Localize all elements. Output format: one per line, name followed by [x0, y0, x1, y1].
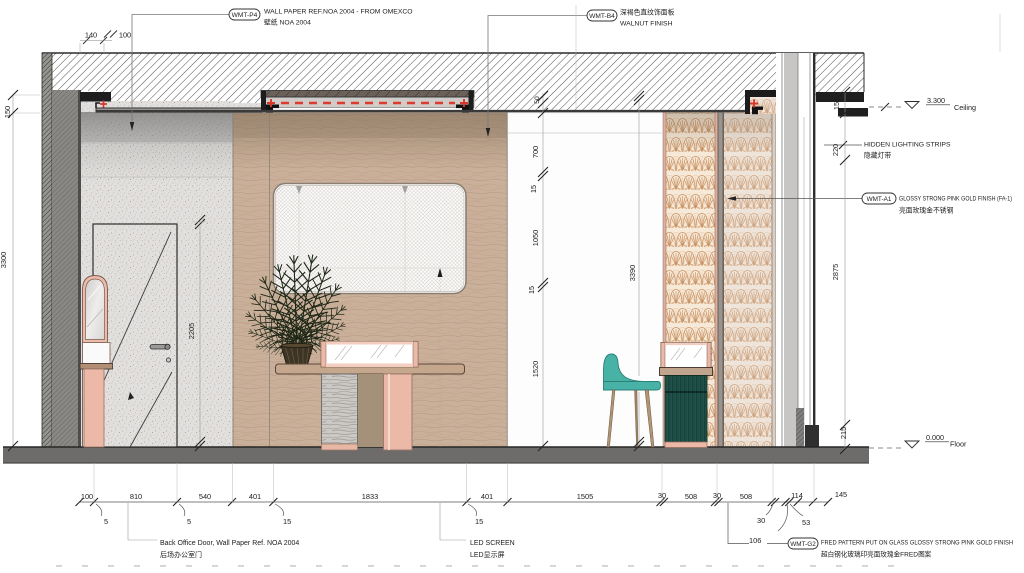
- svg-text:15: 15: [283, 517, 291, 526]
- svg-text:1050: 1050: [531, 230, 540, 246]
- svg-text:GLOSSY STRONG PINK GOLD FINISH: GLOSSY STRONG PINK GOLD FINISH (FA-1): [899, 196, 1012, 203]
- svg-text:140: 140: [85, 31, 97, 40]
- svg-text:3300: 3300: [0, 252, 8, 268]
- svg-text:114: 114: [791, 491, 803, 500]
- svg-text:100: 100: [81, 492, 93, 501]
- svg-text:700: 700: [531, 146, 540, 158]
- svg-text:1520: 1520: [531, 361, 540, 377]
- svg-text:220: 220: [831, 144, 840, 156]
- svg-text:深褐色直纹饰面板: 深褐色直纹饰面板: [620, 8, 675, 17]
- svg-text:WALL PAPER REF.NOA 2004 - FROM: WALL PAPER REF.NOA 2004 - FROM OMEXCO: [264, 9, 413, 16]
- svg-text:3390: 3390: [628, 265, 637, 281]
- svg-text:LED SCREEN: LED SCREEN: [470, 540, 515, 547]
- svg-text:Floor: Floor: [950, 440, 967, 449]
- svg-text:401: 401: [249, 492, 261, 501]
- svg-text:3.300: 3.300: [927, 96, 945, 105]
- svg-text:53: 53: [802, 518, 810, 527]
- svg-text:WMT-G2: WMT-G2: [790, 541, 816, 548]
- svg-text:WMT-A1: WMT-A1: [867, 196, 892, 203]
- svg-text:150: 150: [3, 106, 12, 118]
- svg-text:15: 15: [527, 286, 536, 294]
- svg-text:150: 150: [832, 98, 841, 110]
- svg-text:LED显示屏: LED显示屏: [470, 551, 505, 559]
- svg-text:Back Office Door, Wall Paper R: Back Office Door, Wall Paper Ref. NOA 20…: [160, 540, 299, 547]
- svg-text:WMT-P4: WMT-P4: [232, 12, 258, 19]
- svg-text:亮面玫瑰金不锈钢: 亮面玫瑰金不锈钢: [899, 206, 954, 215]
- svg-text:508: 508: [740, 492, 752, 501]
- svg-text:超白钢化玻璃印亮面玫瑰金FRED图案: 超白钢化玻璃印亮面玫瑰金FRED图案: [821, 550, 932, 559]
- svg-text:隐藏灯带: 隐藏灯带: [864, 151, 891, 160]
- svg-text:1505: 1505: [577, 492, 593, 501]
- svg-text:106: 106: [749, 536, 761, 545]
- svg-text:5: 5: [187, 517, 191, 526]
- svg-text:2875: 2875: [831, 264, 840, 280]
- svg-text:508: 508: [685, 492, 697, 501]
- svg-text:Ceiling: Ceiling: [954, 103, 976, 112]
- svg-text:401: 401: [481, 492, 493, 501]
- svg-text:145: 145: [835, 490, 847, 499]
- svg-text:540: 540: [199, 492, 211, 501]
- svg-text:215: 215: [839, 427, 848, 439]
- svg-text:WALNUT FINISH: WALNUT FINISH: [620, 21, 673, 28]
- svg-text:HIDDEN LIGHTING STRIPS: HIDDEN LIGHTING STRIPS: [864, 142, 951, 149]
- svg-text:FRED PATTERN PUT ON GLASS GLOS: FRED PATTERN PUT ON GLASS GLOSSY STRONG …: [821, 540, 1013, 547]
- svg-text:5: 5: [104, 517, 108, 526]
- svg-text:30: 30: [757, 516, 765, 525]
- svg-text:15: 15: [529, 185, 538, 193]
- svg-text:0.000: 0.000: [926, 433, 944, 442]
- svg-text:2205: 2205: [187, 323, 196, 339]
- svg-text:1833: 1833: [362, 492, 378, 501]
- svg-text:50: 50: [534, 96, 541, 104]
- svg-text:15: 15: [475, 517, 483, 526]
- svg-text:WMT-B4: WMT-B4: [589, 13, 615, 20]
- svg-text:810: 810: [130, 492, 142, 501]
- svg-text:后场办公室门: 后场办公室门: [160, 550, 202, 559]
- svg-text:壁纸 NOA 2004: 壁纸 NOA 2004: [264, 18, 311, 27]
- svg-text:100: 100: [119, 31, 131, 40]
